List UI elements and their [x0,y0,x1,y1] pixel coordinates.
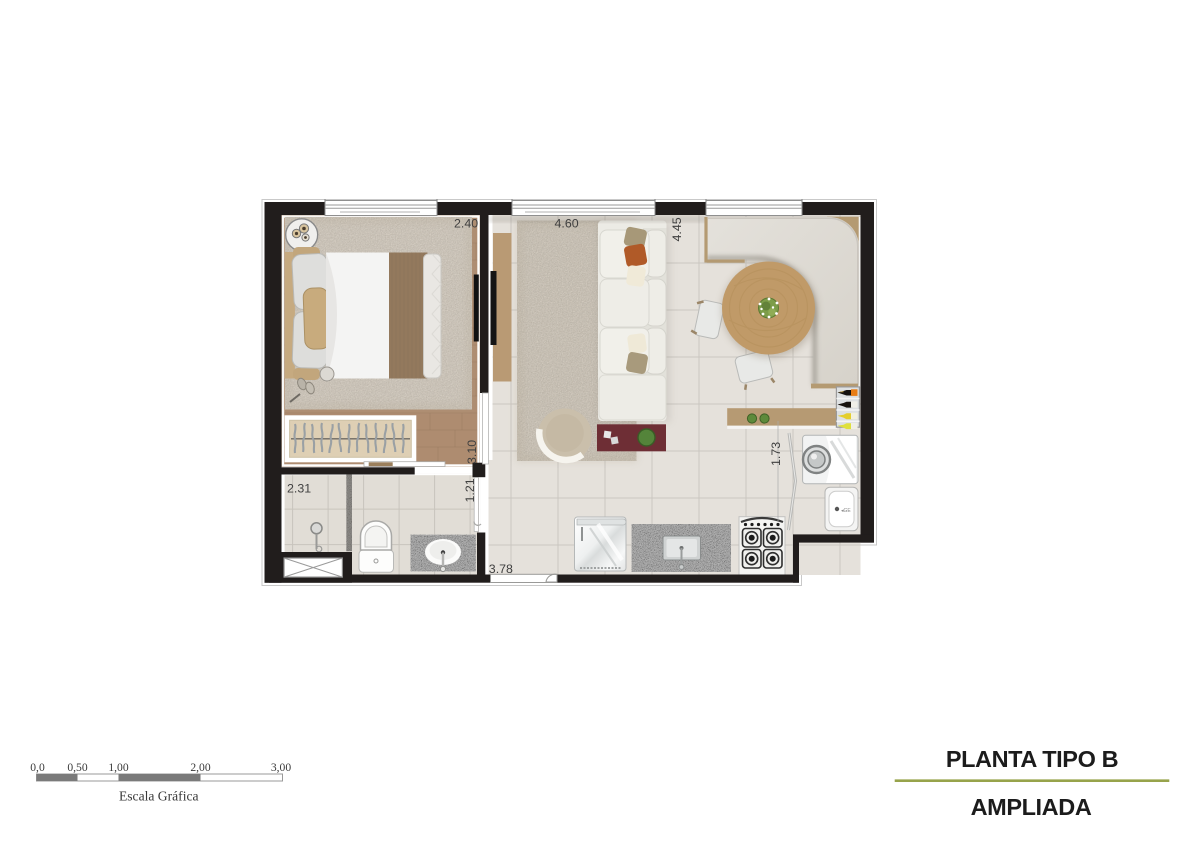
svg-text:1.73: 1.73 [769,442,783,466]
svg-text:1.21: 1.21 [463,478,477,502]
svg-text:2.31: 2.31 [287,482,311,496]
svg-text:◂GE: ◂GE [841,508,851,514]
svg-text:3,00: 3,00 [271,761,291,774]
svg-text:3.10: 3.10 [465,440,479,464]
svg-text:1,00: 1,00 [108,761,128,774]
svg-text:4.45: 4.45 [670,217,684,241]
svg-text:2,00: 2,00 [190,761,210,774]
svg-text:PLANTA TIPO B: PLANTA TIPO B [946,746,1118,772]
svg-text:2.40: 2.40 [454,217,478,231]
svg-text:AMPLIADA: AMPLIADA [971,794,1092,820]
svg-text:4.60: 4.60 [555,217,579,231]
svg-text:3.78: 3.78 [489,562,513,576]
svg-text:0,0: 0,0 [30,761,45,774]
svg-text:0,50: 0,50 [67,761,87,774]
svg-text:Escala Gráfica: Escala Gráfica [119,789,199,804]
